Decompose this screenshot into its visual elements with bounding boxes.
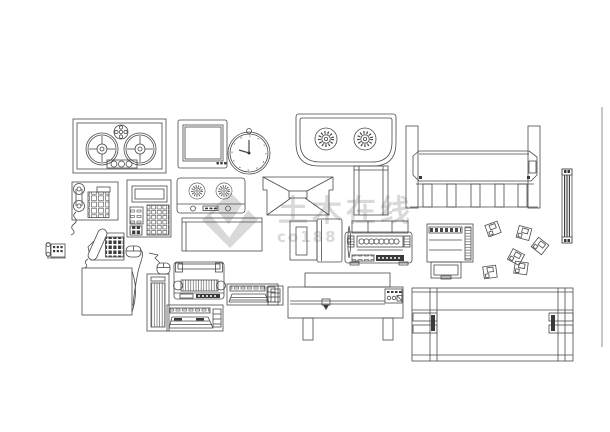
monitor-rear-box bbox=[82, 268, 136, 315]
ac-plotter-unit bbox=[406, 126, 540, 208]
watermark-text: 土木在线 bbox=[278, 194, 414, 229]
copier-printer bbox=[427, 224, 473, 279]
tv-monitor bbox=[178, 120, 227, 168]
mouse-2 bbox=[149, 253, 170, 274]
reel-to-reel-recorder bbox=[73, 119, 166, 173]
floppy-disks bbox=[483, 221, 549, 279]
wall-clock bbox=[228, 129, 270, 175]
mini-phone bbox=[46, 243, 66, 259]
fluorescent-tube bbox=[562, 169, 572, 243]
desk-phone bbox=[85, 228, 124, 268]
pc-tower bbox=[147, 274, 169, 331]
keyboard bbox=[227, 284, 278, 305]
gas-stove bbox=[296, 114, 396, 166]
cad-canvas: 土木在线 co188 bbox=[0, 0, 610, 432]
co188-diamond-logo bbox=[202, 192, 258, 248]
plotter-top bbox=[412, 288, 573, 361]
keyboard-2 bbox=[167, 305, 223, 331]
calculator-console bbox=[127, 180, 171, 237]
cad-sheet: 土木在线 co188 bbox=[0, 0, 610, 432]
wall-phone bbox=[71, 182, 118, 235]
mouse bbox=[126, 246, 143, 306]
dot-matrix-printer bbox=[174, 262, 226, 299]
plotter-front bbox=[288, 273, 403, 340]
